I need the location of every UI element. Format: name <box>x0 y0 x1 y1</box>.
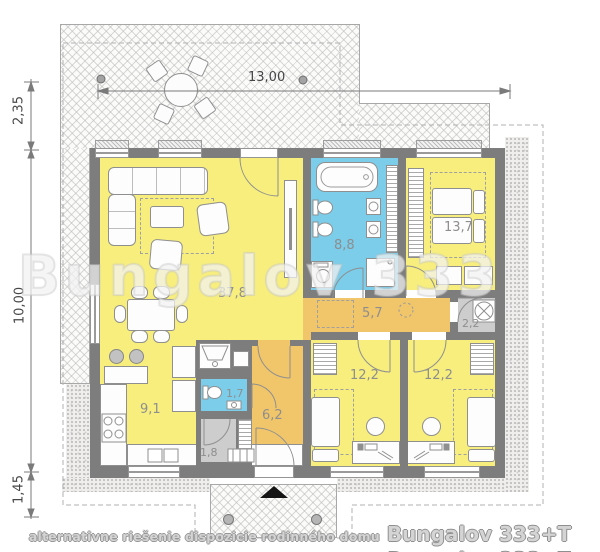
label-hall: 5,7 <box>362 306 383 321</box>
caption-cutoff-title: Bungalov 333+T <box>387 548 571 552</box>
hall-ceiling-light <box>399 303 413 317</box>
dim-left-middle: 10,00 <box>13 283 28 329</box>
label-utility: 2,2 <box>462 317 480 330</box>
kitchen-hood-lines <box>202 346 228 367</box>
caption-title: Bungalov 333+T <box>387 522 571 546</box>
label-storage: 1,8 <box>200 446 218 459</box>
label-bathroom: 8,8 <box>334 238 355 253</box>
label-wc: 1,7 <box>226 387 244 400</box>
plan-linework <box>0 0 600 552</box>
caption-prefix: alternativne riešenie dispozicie rodinné… <box>29 529 380 544</box>
terrace-table-and-chairs <box>146 55 216 124</box>
dim-left-lower: 1,45 <box>12 470 27 510</box>
roof-overhang-outline <box>63 43 543 538</box>
caption: alternativne riešenie dispozicie rodinné… <box>0 522 600 546</box>
label-bedroom-main: 13,7 <box>444 220 473 235</box>
dimension-top <box>98 84 510 99</box>
label-living: 37,8 <box>218 286 247 301</box>
dim-left-upper: 2,35 <box>12 91 27 131</box>
bath-toilets <box>313 200 333 237</box>
label-bedroom-left: 12,2 <box>350 368 379 383</box>
bathtub-inner <box>321 167 373 187</box>
door-arcs <box>204 158 482 466</box>
caption-cutoff: alternativne riešenie dispozicie rodinné… <box>0 548 600 552</box>
label-corridor: 6,2 <box>262 408 283 423</box>
dim-top-width: 13,00 <box>248 70 285 85</box>
desk-items <box>358 444 449 460</box>
floor-plan-canvas: 37,8 8,8 13,7 5,7 2,2 12,2 12,2 9,1 1,7 … <box>0 0 600 552</box>
stove-burners <box>102 414 126 442</box>
label-bedroom-right: 12,2 <box>424 368 453 383</box>
label-kitchen: 9,1 <box>140 402 161 417</box>
